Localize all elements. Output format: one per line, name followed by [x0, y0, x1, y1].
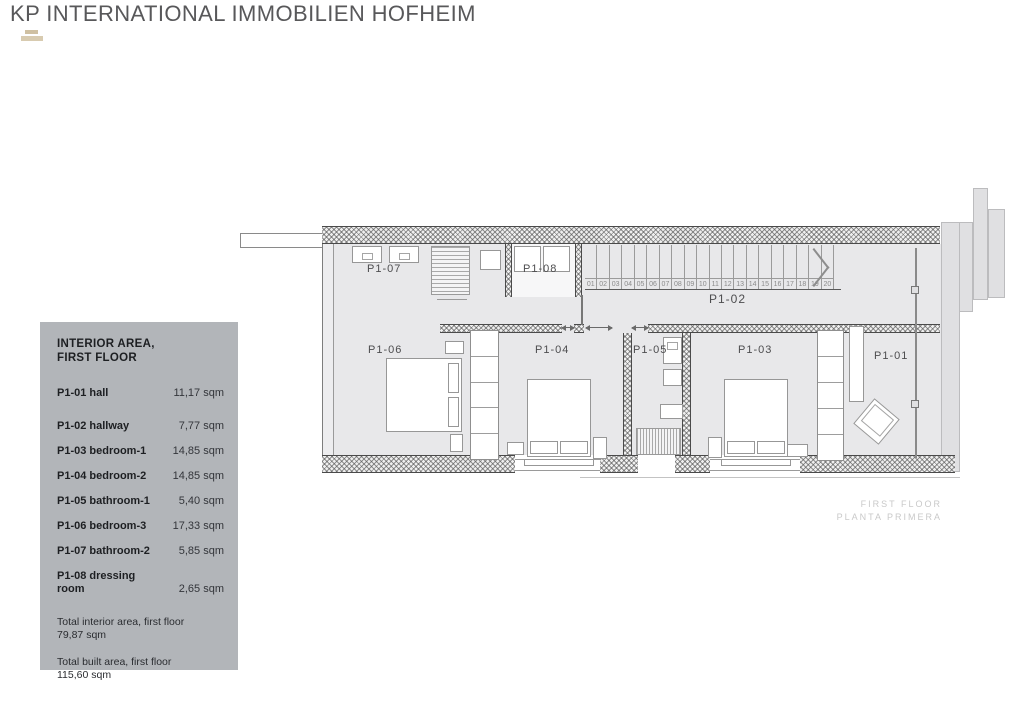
stair-step: 17 [784, 245, 796, 289]
exterior-step-bar [959, 222, 973, 312]
stair-step: 15 [759, 245, 771, 289]
legend-row-label: P1-03 bedroom-1 [57, 445, 146, 458]
room-label-p102: P1-02 [709, 292, 746, 306]
door-arrow-icon [586, 327, 612, 328]
interior-wall [648, 324, 940, 333]
shower-area [636, 428, 681, 455]
legend-row-label: P1-06 bedroom-3 [57, 520, 146, 533]
room-label-p104: P1-04 [535, 344, 569, 356]
basin [362, 253, 373, 260]
logo-bar-icon [25, 30, 38, 34]
stair-step: 13 [734, 245, 746, 289]
door-arrow-icon [632, 327, 648, 328]
exterior-wall-bar [941, 222, 960, 472]
wardrobe-cell [818, 331, 843, 357]
bathroom-divider-wall [682, 333, 691, 455]
wardrobe-cell [471, 408, 498, 434]
wardrobe-cell [471, 383, 498, 409]
stair-step: 08 [672, 245, 684, 289]
bathroom-divider-wall [623, 333, 632, 455]
legend-title-line2: FIRST FLOOR [57, 351, 224, 365]
basin [667, 342, 678, 350]
stair-step: 12 [722, 245, 734, 289]
legend-row-value: 17,33 sqm [173, 520, 224, 533]
wardrobe-cell [471, 331, 498, 357]
sink [352, 246, 382, 263]
stair-number-line [585, 278, 834, 279]
stair-step: 06 [647, 245, 659, 289]
stair-step: 18 [797, 245, 809, 289]
exterior-step-bar [973, 188, 988, 300]
stair-step: 11 [710, 245, 722, 289]
stair-step: 04 [622, 245, 634, 289]
legend-row: P1-02 hallway 7,77 sqm [57, 420, 224, 433]
shelf-line [437, 299, 467, 300]
shelf [660, 404, 683, 419]
wardrobe-cell [818, 409, 843, 435]
toilet [663, 369, 682, 386]
legend-row-label: P1-07 bathroom-2 [57, 545, 150, 558]
room-label-p101: P1-01 [874, 350, 908, 362]
nightstand [787, 444, 808, 457]
window-sill-line [515, 470, 600, 471]
stair-step: 07 [660, 245, 672, 289]
legend-row-value: 11,17 sqm [173, 387, 224, 400]
stair-step: 02 [597, 245, 609, 289]
basin [399, 253, 410, 260]
page-title: KP INTERNATIONAL IMMOBILIEN HOFHEIM [10, 1, 476, 27]
legend-row-label: P1-02 hallway [57, 420, 129, 433]
legend-row-label: P1-08 dressing room [57, 570, 165, 596]
dressing-room-wall [505, 244, 512, 297]
toilet [480, 250, 501, 270]
pillow [530, 441, 558, 454]
legend-title-line1: INTERIOR AREA, [57, 337, 224, 351]
legend-row: P1-03 bedroom-1 14,85 sqm [57, 445, 224, 458]
legend-row: P1-05 bathroom-1 5,40 sqm [57, 495, 224, 508]
stair-step: 10 [697, 245, 709, 289]
door-arrow-icon [562, 327, 574, 328]
wardrobe-cell [818, 383, 843, 409]
pillow [448, 397, 459, 427]
nightstand [445, 341, 464, 354]
bed-headboard [524, 459, 594, 466]
pillow [448, 363, 459, 393]
legend-row-label: P1-01 hall [57, 387, 108, 400]
sideboard [849, 326, 864, 402]
legend-row-value: 5,85 sqm [179, 545, 224, 558]
sink [389, 246, 419, 263]
wardrobe [817, 330, 844, 461]
stair-step: 14 [747, 245, 759, 289]
dressing-room-wall [575, 244, 582, 297]
wardrobe-cell [471, 357, 498, 383]
caption-line1: FIRST FLOOR [792, 498, 942, 511]
canopy-element [240, 233, 328, 248]
room-label-p107: P1-07 [367, 263, 401, 275]
room-label-p106: P1-06 [368, 344, 402, 356]
legend-panel: INTERIOR AREA, FIRST FLOOR P1-01 hall 11… [40, 322, 238, 670]
nightstand [450, 434, 463, 452]
stair-step: 05 [635, 245, 647, 289]
caption-line2: PLANTA PRIMERA [792, 511, 942, 524]
room-label-p105: P1-05 [633, 344, 667, 356]
legend-totals: Total interior area, first floor 79,87 s… [57, 616, 224, 682]
exterior-step-bar [988, 209, 1005, 298]
interior-wall [440, 324, 562, 333]
bottom-wall-segment [675, 455, 710, 473]
legend-total-row: Total built area, first floor 115,60 sqm [57, 656, 224, 682]
legend-row: P1-06 bedroom-3 17,33 sqm [57, 520, 224, 533]
legend-row-value: 2,65 sqm [179, 583, 224, 596]
legend-row-label: P1-05 bathroom-1 [57, 495, 150, 508]
wardrobe-cell [818, 435, 843, 460]
pillow [757, 441, 785, 454]
shower-area [431, 246, 470, 295]
partition-post [911, 400, 919, 408]
terrace-edge-line [580, 477, 960, 478]
wardrobe [470, 330, 499, 460]
nightstand [708, 437, 722, 458]
legend-row-value: 14,85 sqm [173, 470, 224, 483]
legend-title: INTERIOR AREA, FIRST FLOOR [57, 337, 224, 365]
stair-step: 16 [772, 245, 784, 289]
legend-total-value: 115,60 sqm [57, 669, 224, 682]
plan-caption: FIRST FLOOR PLANTA PRIMERA [792, 498, 942, 524]
window-sill-line [710, 470, 800, 471]
legend-total-label: Total interior area, first floor [57, 616, 224, 629]
door-leaf-line [581, 295, 583, 325]
legend-total-row: Total interior area, first floor 79,87 s… [57, 616, 224, 642]
legend-row: P1-08 dressing room 2,65 sqm [57, 570, 224, 596]
legend-row-label: P1-04 bedroom-2 [57, 470, 146, 483]
left-window-wall [322, 244, 334, 455]
pillow [727, 441, 755, 454]
stair-step: 01 [585, 245, 597, 289]
stair-step: 03 [610, 245, 622, 289]
wardrobe-cell [818, 357, 843, 383]
legend-row-value: 7,77 sqm [179, 420, 224, 433]
company-logo [21, 29, 43, 42]
logo-bar-icon [21, 36, 43, 41]
legend-total-value: 79,87 sqm [57, 629, 224, 642]
partition-post [911, 286, 919, 294]
room-label-p103: P1-03 [738, 344, 772, 356]
bed-headboard [721, 459, 791, 466]
legend-row-value: 5,40 sqm [179, 495, 224, 508]
top-exterior-wall [322, 226, 940, 244]
legend-row-value: 14,85 sqm [173, 445, 224, 458]
legend-row: P1-07 bathroom-2 5,85 sqm [57, 545, 224, 558]
interior-wall-pier [574, 324, 584, 333]
stair-step: 09 [685, 245, 697, 289]
glass-partition-line [915, 248, 917, 458]
nightstand [593, 437, 607, 459]
staircase-steps: 0102030405060708091011121314151617181920 [585, 245, 834, 289]
nightstand [507, 442, 524, 455]
wardrobe-cell [471, 434, 498, 459]
legend-total-label: Total built area, first floor [57, 656, 224, 669]
room-label-p108: P1-08 [523, 263, 557, 275]
legend-row: P1-01 hall 11,17 sqm [57, 387, 224, 400]
pillow [560, 441, 588, 454]
stair-base-line [585, 289, 841, 290]
legend-row: P1-04 bedroom-2 14,85 sqm [57, 470, 224, 483]
